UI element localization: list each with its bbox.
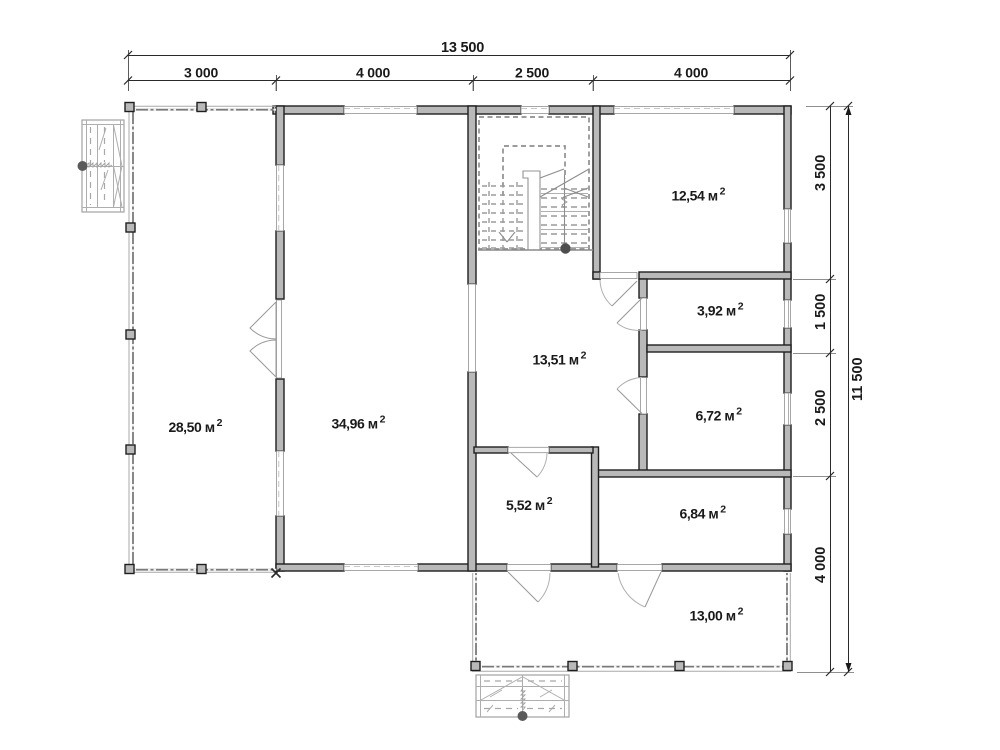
svg-text:28,50 м2: 28,50 м2 bbox=[169, 417, 223, 435]
svg-text:4 000: 4 000 bbox=[813, 547, 829, 583]
svg-text:34,96 м2: 34,96 м2 bbox=[332, 414, 386, 432]
svg-text:1 500: 1 500 bbox=[813, 294, 829, 330]
svg-text:11 500: 11 500 bbox=[850, 357, 866, 401]
svg-text:3 500: 3 500 bbox=[813, 155, 829, 191]
svg-text:2 500: 2 500 bbox=[813, 390, 829, 426]
svg-text:4 000: 4 000 bbox=[356, 65, 390, 81]
svg-text:2 500: 2 500 bbox=[515, 65, 549, 81]
svg-text:3 000: 3 000 bbox=[184, 65, 218, 81]
svg-text:12,54 м2: 12,54 м2 bbox=[672, 186, 726, 204]
svg-text:4 000: 4 000 bbox=[674, 65, 708, 81]
svg-text:13,51 м2: 13,51 м2 bbox=[533, 350, 587, 368]
svg-text:13,00 м2: 13,00 м2 bbox=[690, 606, 744, 624]
svg-text:13 500: 13 500 bbox=[441, 40, 484, 56]
